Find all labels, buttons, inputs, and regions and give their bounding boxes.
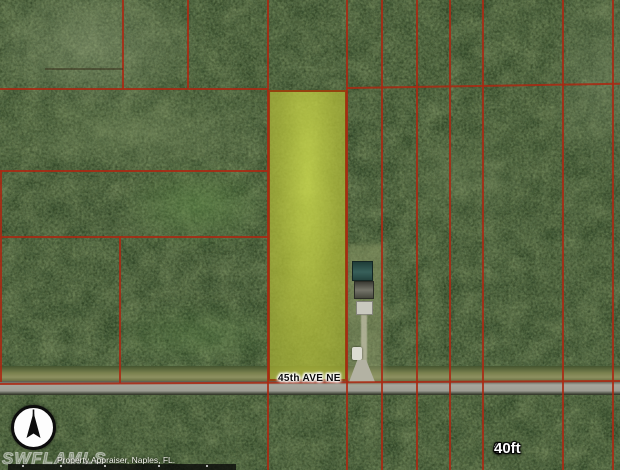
parcel-boundary-line (267, 0, 269, 470)
parcel-boundary-line (0, 236, 268, 238)
parcel-boundary-line (0, 88, 268, 90)
building-teal-roof (352, 261, 373, 281)
parcel-boundary-line (119, 236, 121, 383)
white-shed (356, 301, 373, 315)
aerial-map[interactable]: 45th AVE NE 0 40ft SWFLAMLS Property App… (0, 0, 620, 470)
parcel-boundary-line (0, 170, 2, 382)
canopy-patch (545, 0, 620, 175)
parcel-boundary-line (0, 170, 268, 172)
forest-trail (45, 68, 123, 70)
cropped-info-bar (8, 464, 236, 470)
parcel-boundary-line (482, 0, 484, 470)
parcel-boundary-line (346, 0, 348, 470)
parcel-boundary-line (562, 0, 564, 470)
parcel-boundary-line (612, 0, 614, 470)
parcel-boundary-line (381, 0, 383, 470)
canopy-patch (388, 120, 538, 230)
north-arrow-icon (11, 405, 56, 450)
road-label: 45th AVE NE (278, 373, 341, 384)
parcel-boundary-line (122, 0, 124, 89)
parcel-boundary-line (416, 0, 418, 470)
building-gray-roof (354, 281, 374, 299)
scale-distance-label: 40ft (494, 440, 521, 457)
parked-vehicle (352, 347, 362, 360)
parcel-boundary-line (187, 0, 189, 88)
parcel-boundary-line (449, 0, 451, 470)
highlighted-parcel[interactable] (268, 90, 347, 381)
